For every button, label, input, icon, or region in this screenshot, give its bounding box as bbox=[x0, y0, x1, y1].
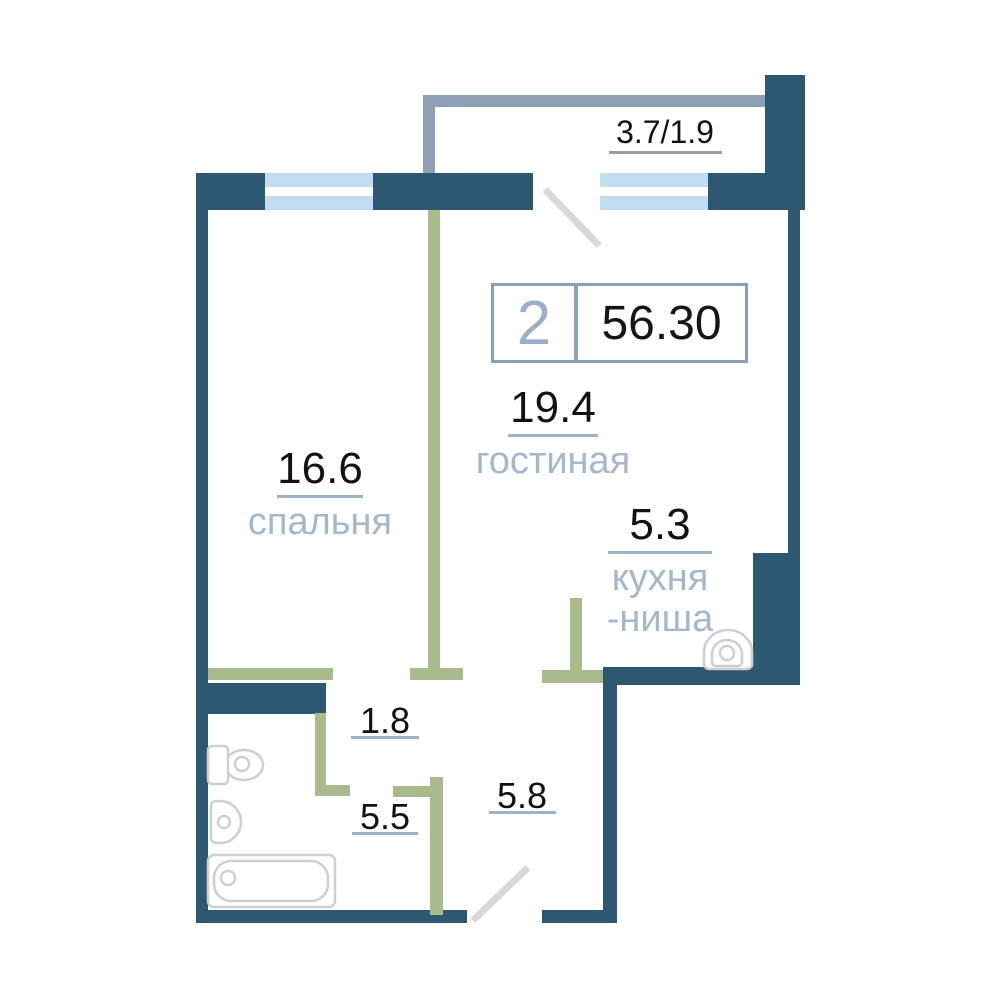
toilet-icon bbox=[208, 746, 263, 784]
kitchen-sink-icon bbox=[704, 630, 752, 669]
floorplan: 2 56.30 3.7/1.9 19.4 гостиная 16.6 спаль… bbox=[0, 0, 1000, 1000]
bathtub-icon bbox=[208, 855, 335, 907]
bathroom-sink-icon bbox=[211, 801, 241, 843]
fixtures-layer bbox=[0, 0, 1000, 1000]
